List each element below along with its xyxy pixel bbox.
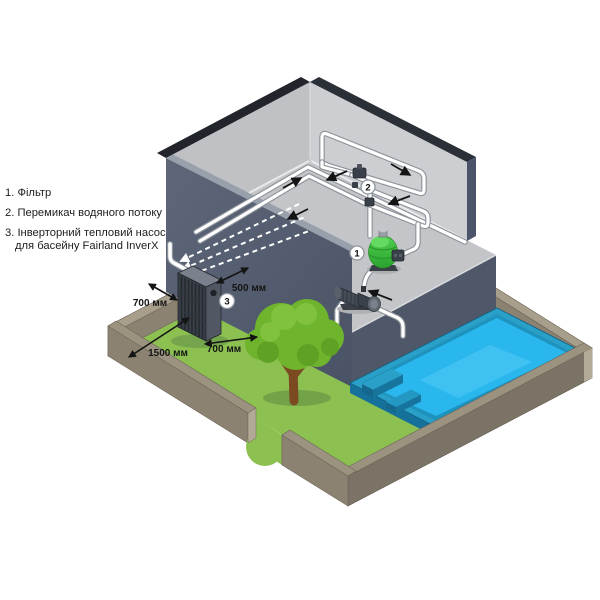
installation-diagram: 500 мм 700 мм 1500 мм 700 мм 1 2 3 1. Фі… (0, 0, 600, 600)
dim-label-700-right: 700 мм (207, 344, 241, 355)
heat-pump-side (206, 280, 221, 341)
fence-right-cap (584, 348, 592, 382)
legend-item-3-line2: для басейну Fairland InverX (15, 240, 159, 252)
legend: 1. Фільтр 2. Перемикач водяного потоку 3… (5, 187, 166, 252)
right-wall-end-face (467, 157, 476, 241)
svg-text:2: 2 (365, 182, 370, 193)
svg-text:3: 3 (224, 296, 229, 307)
dim-label-1500: 1500 мм (148, 348, 188, 359)
badge-heat-pump: 3 (220, 294, 235, 309)
grille-slats (182, 277, 203, 339)
dim-label-700-left: 700 мм (133, 298, 167, 309)
heat-pump-logo (210, 290, 216, 296)
badge-flow-switch: 2 (361, 180, 375, 194)
dim-label-500: 500 мм (232, 283, 266, 294)
badge-filter: 1 (350, 246, 364, 260)
legend-item-3: 3. Інверторний тепловий насос (5, 227, 166, 239)
diagram-canvas: 500 мм 700 мм 1500 мм 700 мм 1 2 3 1. Фі… (0, 0, 600, 600)
legend-item-2: 2. Перемикач водяного потоку (5, 207, 162, 219)
svg-text:1: 1 (354, 248, 360, 259)
filter-dome-highlight (371, 237, 389, 248)
legend-item-1: 1. Фільтр (5, 187, 51, 199)
fence-gap-cap-left (248, 408, 256, 443)
multiport-valve (392, 250, 404, 261)
